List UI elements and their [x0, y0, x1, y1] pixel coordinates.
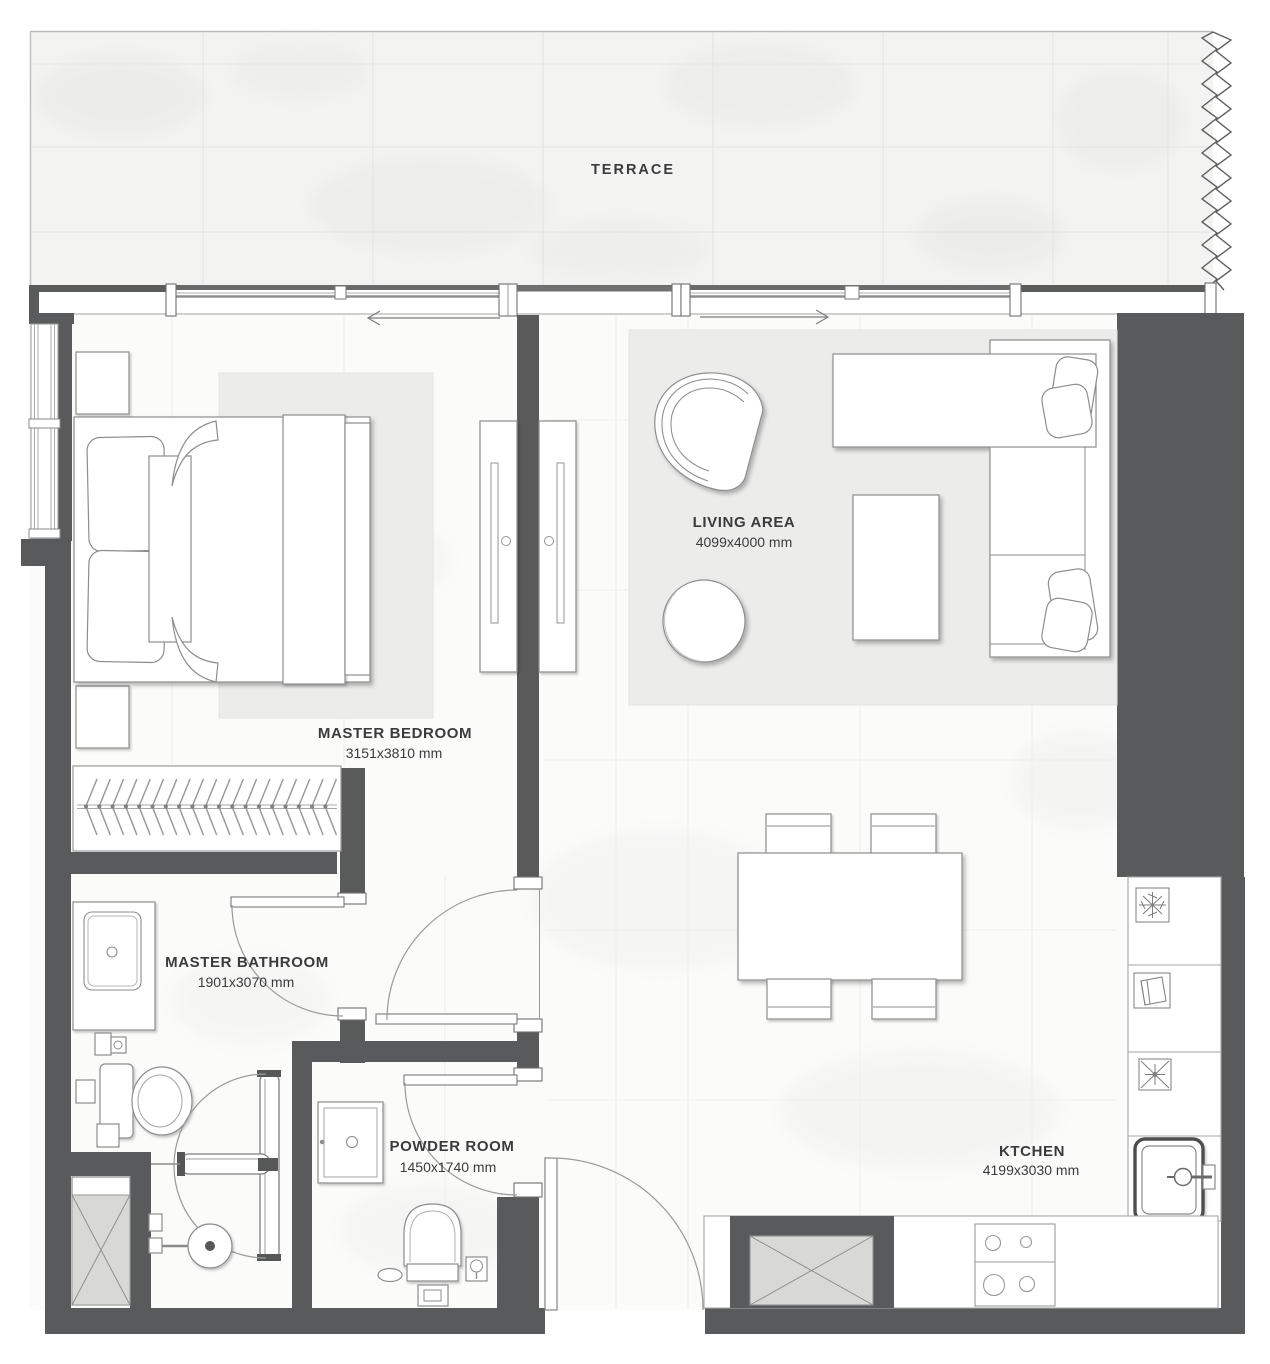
svg-text:KTCHEN: KTCHEN [999, 1143, 1065, 1160]
svg-text:3151x3810 mm: 3151x3810 mm [346, 745, 443, 761]
svg-text:1901x3070 mm: 1901x3070 mm [198, 974, 295, 990]
svg-text:POWDER ROOM: POWDER ROOM [390, 1138, 515, 1155]
svg-text:1450x1740 mm: 1450x1740 mm [400, 1159, 497, 1175]
svg-text:MASTER BATHROOM: MASTER BATHROOM [165, 954, 329, 971]
svg-text:MASTER BEDROOM: MASTER BEDROOM [318, 725, 472, 742]
svg-text:LIVING AREA: LIVING AREA [693, 514, 796, 531]
svg-text:4099x4000 mm: 4099x4000 mm [696, 534, 793, 550]
svg-text:TERRACE: TERRACE [591, 162, 675, 178]
svg-text:4199x3030 mm: 4199x3030 mm [983, 1162, 1080, 1178]
